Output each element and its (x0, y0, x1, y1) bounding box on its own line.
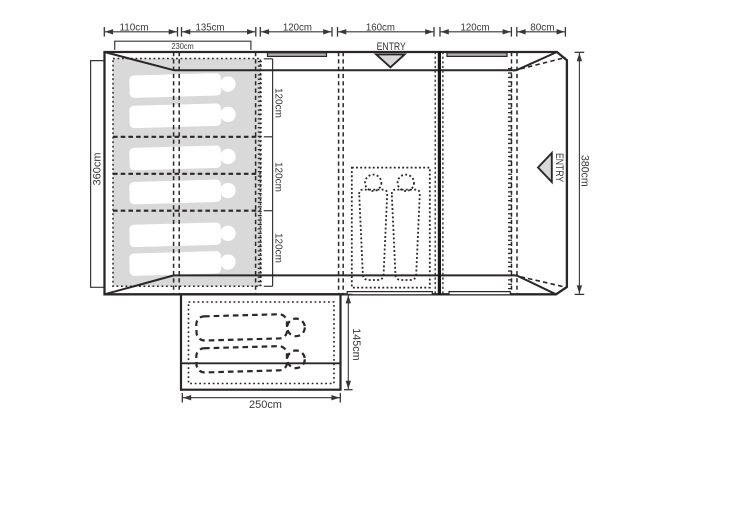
svg-text:160cm: 160cm (366, 22, 395, 34)
svg-text:120cm: 120cm (273, 88, 285, 118)
svg-text:110cm: 110cm (120, 22, 149, 34)
svg-text:230cm: 230cm (171, 42, 194, 51)
svg-text:80cm: 80cm (530, 22, 555, 34)
svg-text:135cm: 135cm (196, 22, 225, 34)
svg-text:360cm: 360cm (91, 153, 103, 186)
svg-text:120cm: 120cm (273, 162, 285, 192)
svg-text:ENTRY: ENTRY (377, 41, 407, 53)
svg-text:120cm: 120cm (461, 22, 490, 34)
svg-text:ENTRY: ENTRY (553, 153, 565, 183)
svg-text:145cm: 145cm (350, 328, 362, 360)
svg-text:250cm: 250cm (249, 399, 282, 411)
svg-text:380cm: 380cm (578, 155, 590, 187)
svg-text:120cm: 120cm (283, 22, 312, 34)
svg-text:120cm: 120cm (273, 233, 285, 263)
